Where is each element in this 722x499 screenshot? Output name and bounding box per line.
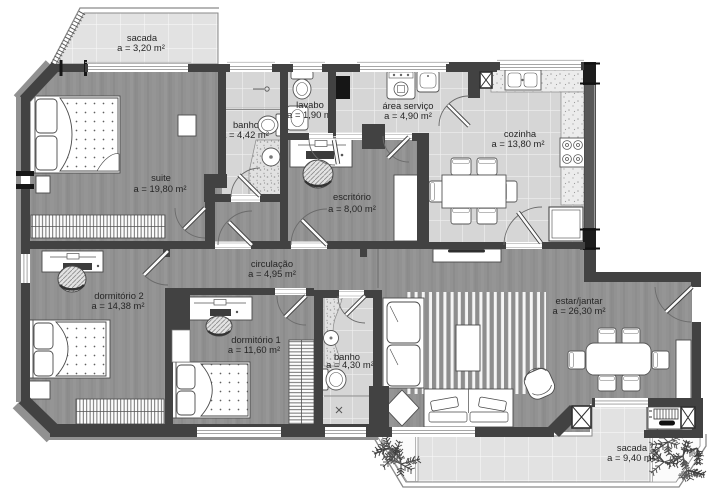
svg-text:a = 11,60 m²: a = 11,60 m²: [228, 344, 280, 355]
svg-text:a = 8,00 m²: a = 8,00 m²: [328, 203, 376, 214]
svg-text:a = 3,20 m²: a = 3,20 m²: [117, 42, 165, 53]
svg-text:a = 4,42 m²: a = 4,42 m²: [221, 129, 269, 140]
svg-text:a = 13,80 m²: a = 13,80 m²: [492, 138, 545, 149]
svg-text:a = 9,40 m²: a = 9,40 m²: [607, 452, 655, 463]
svg-text:suite: suite: [151, 172, 171, 183]
svg-text:a = 19,80 m²: a = 19,80 m²: [134, 183, 187, 194]
svg-text:a = 1,90 m²: a = 1,90 m²: [287, 109, 335, 120]
svg-text:a = 4,90 m²: a = 4,90 m²: [384, 110, 432, 121]
svg-text:a = 4,95 m²: a = 4,95 m²: [248, 268, 296, 279]
svg-text:a = 4,30 m²: a = 4,30 m²: [326, 359, 374, 370]
svg-text:escritório: escritório: [333, 191, 371, 202]
svg-text:a = 14,38 m²: a = 14,38 m²: [92, 300, 145, 311]
svg-text:a = 26,30 m²: a = 26,30 m²: [553, 305, 606, 316]
